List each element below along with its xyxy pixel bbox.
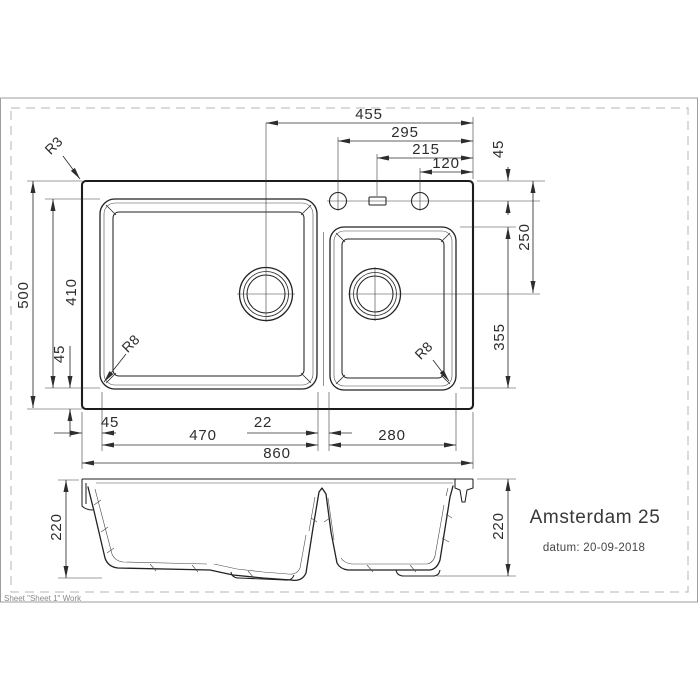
dim-455: 455: [355, 106, 382, 123]
drawing-date: datum: 20-09-2018: [543, 542, 645, 554]
dim-45-bottom: 45: [101, 414, 119, 431]
dim-860: 860: [263, 445, 290, 462]
dim-280: 280: [378, 427, 405, 444]
product-name: Amsterdam 25: [530, 507, 661, 528]
radius-r8-main: R8: [118, 331, 142, 355]
radius-labels: R3 R8 R8: [41, 133, 449, 382]
dimensions-section: 220 220: [48, 479, 516, 578]
dim-220-right: 220: [490, 512, 507, 539]
radius-r8-small: R8: [411, 338, 435, 362]
sink-section-view: [82, 479, 473, 580]
dim-45-top-right: 45: [490, 140, 507, 158]
technical-drawing: 455 295 215 120 45 250 355 500 410: [0, 0, 700, 700]
small-drain-bump: [396, 570, 440, 576]
dimensions-top: 455 295 215 120: [266, 106, 473, 179]
dim-295: 295: [391, 124, 418, 141]
dim-470: 470: [189, 427, 216, 444]
dim-500: 500: [15, 281, 32, 308]
dim-22: 22: [254, 414, 272, 431]
radius-r3: R3: [41, 133, 65, 157]
dimensions-bottom: 45 22 470 280 860: [54, 392, 473, 469]
main-drain: [237, 123, 295, 322]
dim-410: 410: [63, 278, 80, 305]
dimensions-left: 500 410 45: [15, 181, 100, 437]
dim-120: 120: [432, 155, 459, 172]
dim-45-left: 45: [51, 345, 68, 363]
dim-220-left: 220: [48, 513, 65, 540]
title-block: Amsterdam 25 datum: 20-09-2018: [530, 507, 661, 554]
dim-355: 355: [491, 323, 508, 350]
sink-outline: [82, 181, 473, 409]
sink-top-view: [82, 123, 540, 409]
hatch-ticks: [94, 500, 452, 578]
drawing-sheet: 455 295 215 120 45 250 355 500 410: [0, 0, 700, 700]
dim-250: 250: [516, 223, 533, 250]
sheet-footer-note: Sheet "Sheet 1" Work: [4, 594, 82, 603]
